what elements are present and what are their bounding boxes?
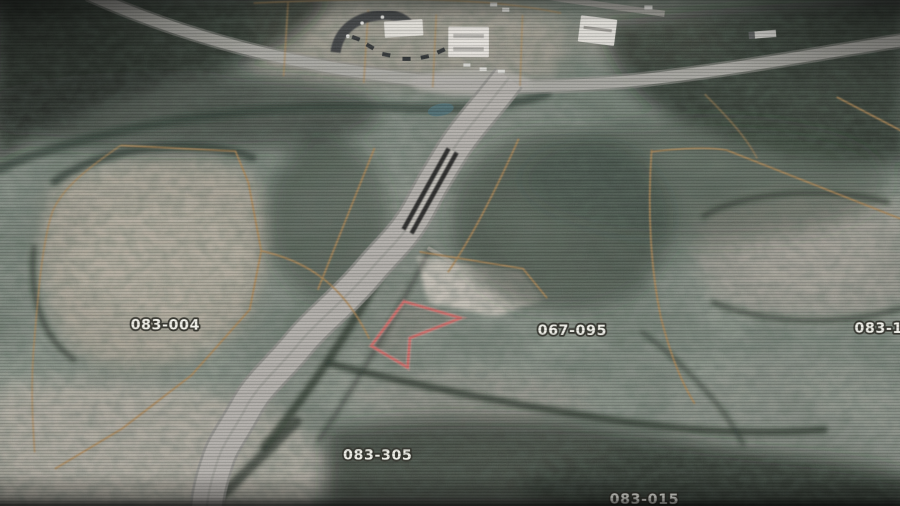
parcel-label-083-004[interactable]: 083-004 xyxy=(131,317,201,333)
parcel-label-083-10[interactable]: 083-10 xyxy=(854,321,900,337)
photo-grain xyxy=(0,0,900,506)
parcel-label-083-305[interactable]: 083-305 xyxy=(343,447,413,463)
parcel-label-083-015[interactable]: 083-015 xyxy=(610,492,680,506)
gis-aerial-map[interactable]: 083-004 067-095 083-10 083-305 083-015 xyxy=(0,0,900,506)
aerial-imagery: 083-004 067-095 083-10 083-305 083-015 xyxy=(0,0,900,506)
parcel-label-067-095[interactable]: 067-095 xyxy=(538,323,608,339)
